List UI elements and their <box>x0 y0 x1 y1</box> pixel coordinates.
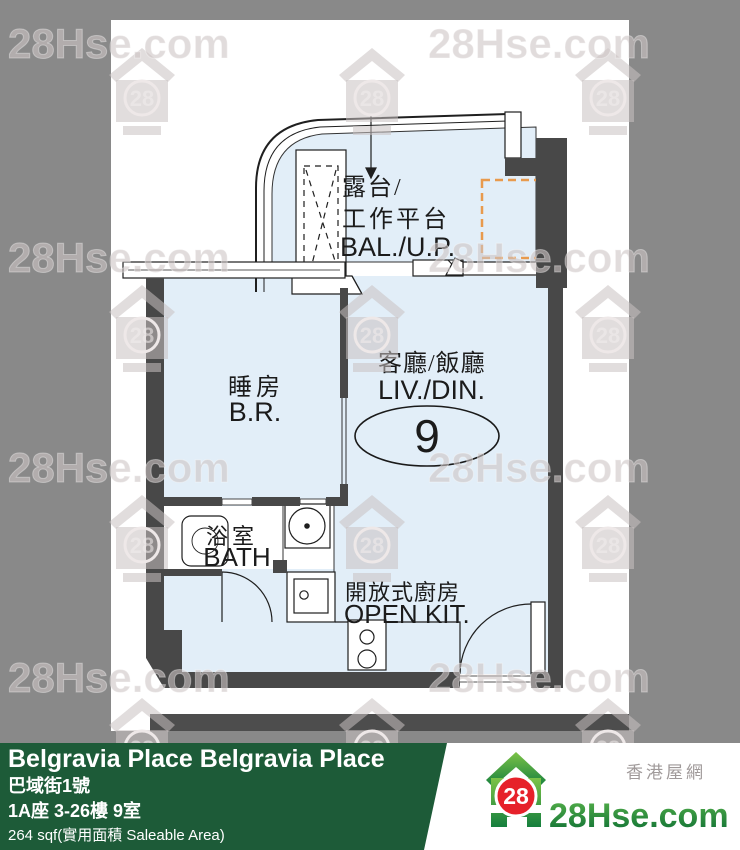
wall-partition-stub <box>340 484 348 498</box>
site-logo-svg: 28 28Hse.com 香港屋網 <box>483 748 740 848</box>
bedroom-bottom-window <box>222 499 252 505</box>
column-outline <box>505 112 521 158</box>
watermark-text: 28Hse.com <box>428 444 650 491</box>
logo-house-icon: 28 <box>486 752 546 827</box>
label-balcony-cn2: 工作平台 <box>342 206 450 233</box>
saleable-area: 264 sqf(實用面積 Saleable Area) <box>8 824 452 848</box>
wall-bedroom-bottom3 <box>326 497 348 506</box>
watermark-text: 28Hse.com <box>8 654 230 701</box>
label-bath-en: BATH <box>203 542 270 572</box>
estate-address: 巴域街1號 <box>8 774 452 799</box>
label-bedroom-en: B.R. <box>229 397 282 427</box>
label-living-en: LIV./DIN. <box>378 375 485 405</box>
logo-badge-text: 28 <box>503 783 529 809</box>
site-logo[interactable]: 28 28Hse.com 香港屋網 <box>483 748 740 848</box>
balcony-step <box>292 276 362 294</box>
floorplan-page: 28 <box>0 0 740 850</box>
label-balcony-cn1: 露台/ <box>342 174 403 201</box>
toilet-dot-icon <box>305 524 309 528</box>
unit-info: 1A座 3-26樓 9室 <box>8 799 452 824</box>
watermark-text: 28Hse.com <box>428 654 650 701</box>
wall-balcony-right <box>505 158 538 176</box>
wall-bedroom-bottom1 <box>164 497 222 506</box>
label-kitchen-en: OPEN KIT. <box>344 599 470 629</box>
logo-site-text: 28Hse.com <box>549 797 729 835</box>
estate-name: Belgravia Place Belgravia Place <box>8 744 452 774</box>
watermark-text: 28Hse.com <box>428 20 650 67</box>
floorplan-svg: 28 <box>0 0 740 850</box>
watermark-text: 28Hse.com <box>8 20 230 67</box>
wall-pier <box>273 560 287 573</box>
project-banner: Belgravia Place Belgravia Place 巴域街1號 1A… <box>0 743 452 850</box>
logo-tagline: 香港屋網 <box>626 763 706 782</box>
wall-bedroom-bottom2 <box>252 497 300 506</box>
watermark-text: 28Hse.com <box>8 444 230 491</box>
watermark-text: 28Hse.com <box>428 234 650 281</box>
watermark-text: 28Hse.com <box>8 234 230 281</box>
